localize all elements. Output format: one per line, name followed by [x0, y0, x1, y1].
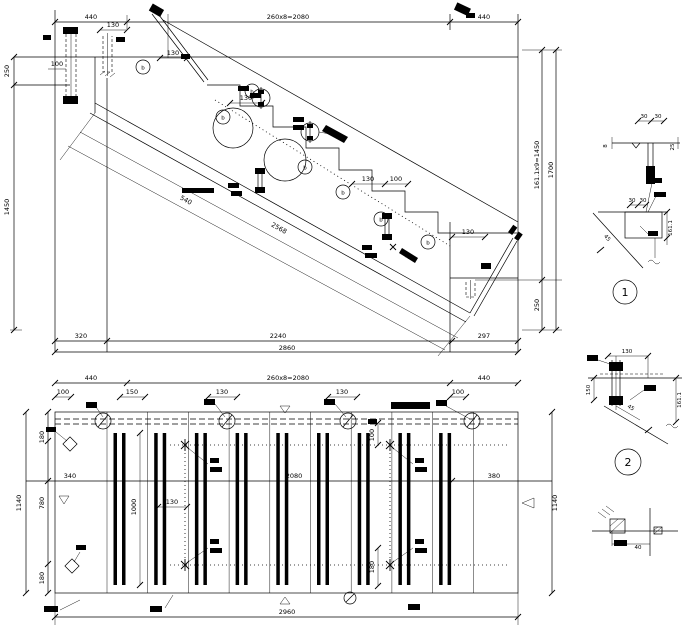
detail-2-number: 2 — [625, 456, 632, 469]
dim-right-risers: 161.1x9=1450 — [533, 141, 541, 190]
bottom-landing — [450, 225, 523, 316]
plan-dim-1000: 1000 — [130, 499, 138, 516]
dim-step3: 100 — [390, 175, 402, 183]
dim-top-left: 440 — [85, 13, 97, 21]
plan-dim-180b: 180 — [38, 572, 46, 584]
detail-2: 130 150 161.1 45 2 — [586, 349, 683, 475]
letter-callouts: b b b b b b b — [136, 60, 435, 249]
plan-dim-1140-right: 1140 — [551, 495, 559, 512]
d1-dim-30d: 30 — [640, 198, 647, 204]
plan-dim-180c: 180 — [368, 561, 376, 573]
tread-bolt-1 — [255, 168, 265, 193]
detail-1: 30 30 8 25 30 30 45 16 — [593, 114, 680, 304]
dim-slope-540: 540 — [179, 194, 194, 207]
dim-landing: 130 — [462, 228, 474, 236]
plan-dim-340: 340 — [64, 472, 76, 480]
detail-scope-circle-1 — [213, 108, 253, 148]
cad-drawing: 440 260x8=2080 440 250 1450 100 — [0, 0, 685, 638]
tread-division-lines — [107, 412, 473, 593]
dim-right-250: 250 — [533, 299, 541, 311]
plan-dim-130a: 130 — [216, 388, 228, 396]
plan-dim-100b: 100 — [452, 388, 464, 396]
plan-dim-bottom-total: 2960 — [279, 608, 296, 616]
embedded-plate-1 — [322, 125, 348, 143]
plan-bottom-extras — [44, 592, 420, 612]
d1-dim-8: 8 — [603, 144, 609, 148]
dim-slope-2568: 2568 — [270, 221, 288, 236]
d1-dim-25: 25 — [670, 143, 676, 150]
plan-dim-100a: 100 — [57, 388, 69, 396]
dim-top-mid: 260x8=2080 — [267, 13, 309, 21]
plan-dim-380: 380 — [488, 472, 500, 480]
plan-dim-130c: 130 — [166, 498, 178, 506]
svg-text:b: b — [221, 116, 225, 122]
stair-steps — [207, 85, 518, 233]
d1-angle: 45 — [602, 234, 611, 244]
plan-dim-1140-left: 1140 — [15, 495, 23, 512]
dim-right-total: 1700 — [547, 162, 555, 179]
stair-section-view: 440 260x8=2080 440 250 1450 100 — [3, 2, 562, 356]
joint-sketch: 40 — [592, 506, 678, 556]
plan-right-dims: 1140 — [549, 409, 559, 596]
plan-dim-top-right: 440 — [478, 374, 490, 382]
section-bottom-dims: 320 2240 297 2860 — [52, 332, 521, 355]
railing-post-bottom — [470, 225, 523, 316]
plan-dim-130b: 130 — [336, 388, 348, 396]
dim-left-1450: 1450 — [3, 199, 11, 216]
plate-mark-bar — [391, 402, 430, 409]
cad-sheet: 440 260x8=2080 440 250 1450 100 — [0, 0, 685, 638]
d1-dim-30b: 30 — [655, 114, 662, 120]
d2-dim-130: 130 — [622, 349, 633, 355]
d1-dim-30c: 30 — [629, 198, 636, 204]
d2-dim-150: 150 — [586, 384, 592, 395]
level-mark-left — [59, 496, 69, 504]
plan-dim-100c: 100 — [368, 429, 376, 441]
dim-bot-total: 2860 — [279, 344, 296, 352]
tread-bars — [114, 433, 452, 585]
plan-top-dims-2: 100 150 130 130 100 — [52, 388, 469, 400]
plan-interior-dims: 1000 130 100 180 — [130, 420, 381, 589]
dim-bot-297: 297 — [478, 332, 490, 340]
svg-text:b: b — [341, 191, 345, 197]
d1-dim-30a: 30 — [641, 114, 648, 120]
section-right-dims: 161.1x9=1450 1700 250 — [475, 47, 562, 333]
diamond-markers — [46, 427, 86, 573]
plan-left-dims: 180 780 180 1140 — [15, 409, 51, 596]
dim-bot-320: 320 — [75, 332, 87, 340]
d1-dim-h: 161.1 — [668, 220, 674, 236]
plan-dim-top-mid: 260x8=2080 — [267, 374, 309, 382]
d2-dim-h: 161.1 — [677, 392, 683, 408]
dim-bot-2240: 2240 — [270, 332, 287, 340]
dim-step0: 130 — [167, 49, 179, 57]
detail-1-main: 30 30 45 161.1 — [593, 178, 674, 268]
level-mark-right — [522, 498, 534, 508]
plan-dim-top-left: 440 — [85, 374, 97, 382]
svg-text:b: b — [141, 66, 145, 72]
d2-angle: 45 — [626, 404, 636, 413]
level-mark-bottom — [280, 597, 290, 604]
dim-left-250: 250 — [3, 65, 11, 77]
detail-2-bolt — [609, 356, 623, 410]
detail-1-top-sketch: 30 30 8 25 — [603, 114, 680, 184]
plan-dim-2080: 2080 — [286, 472, 303, 480]
tread-bolt-2 — [382, 213, 396, 250]
embedded-anchor-2: 130 — [97, 21, 130, 77]
detail-1-number: 1 — [622, 286, 629, 299]
dim-anchor2: 130 — [107, 21, 119, 29]
plan-dim-780: 780 — [38, 497, 46, 509]
plan-dim-180a: 180 — [38, 431, 46, 443]
joint-dim-40: 40 — [635, 545, 642, 551]
dim-top-right: 440 — [478, 13, 490, 21]
dim-step2: 130 — [362, 175, 374, 183]
slope-dimensions: 540 2568 45 — [60, 113, 470, 356]
svg-text:b: b — [426, 241, 430, 247]
embedded-anchor-1 — [63, 27, 78, 104]
stair-plan-view: 440 260x8=2080 440 100 150 130 130 100 — [15, 374, 559, 625]
railing-post-top — [149, 4, 208, 82]
dim-left-100: 100 — [51, 60, 63, 68]
svg-text:b: b — [303, 166, 307, 172]
plan-dim-150: 150 — [126, 388, 138, 396]
detail-scope-circle-2 — [264, 139, 306, 181]
